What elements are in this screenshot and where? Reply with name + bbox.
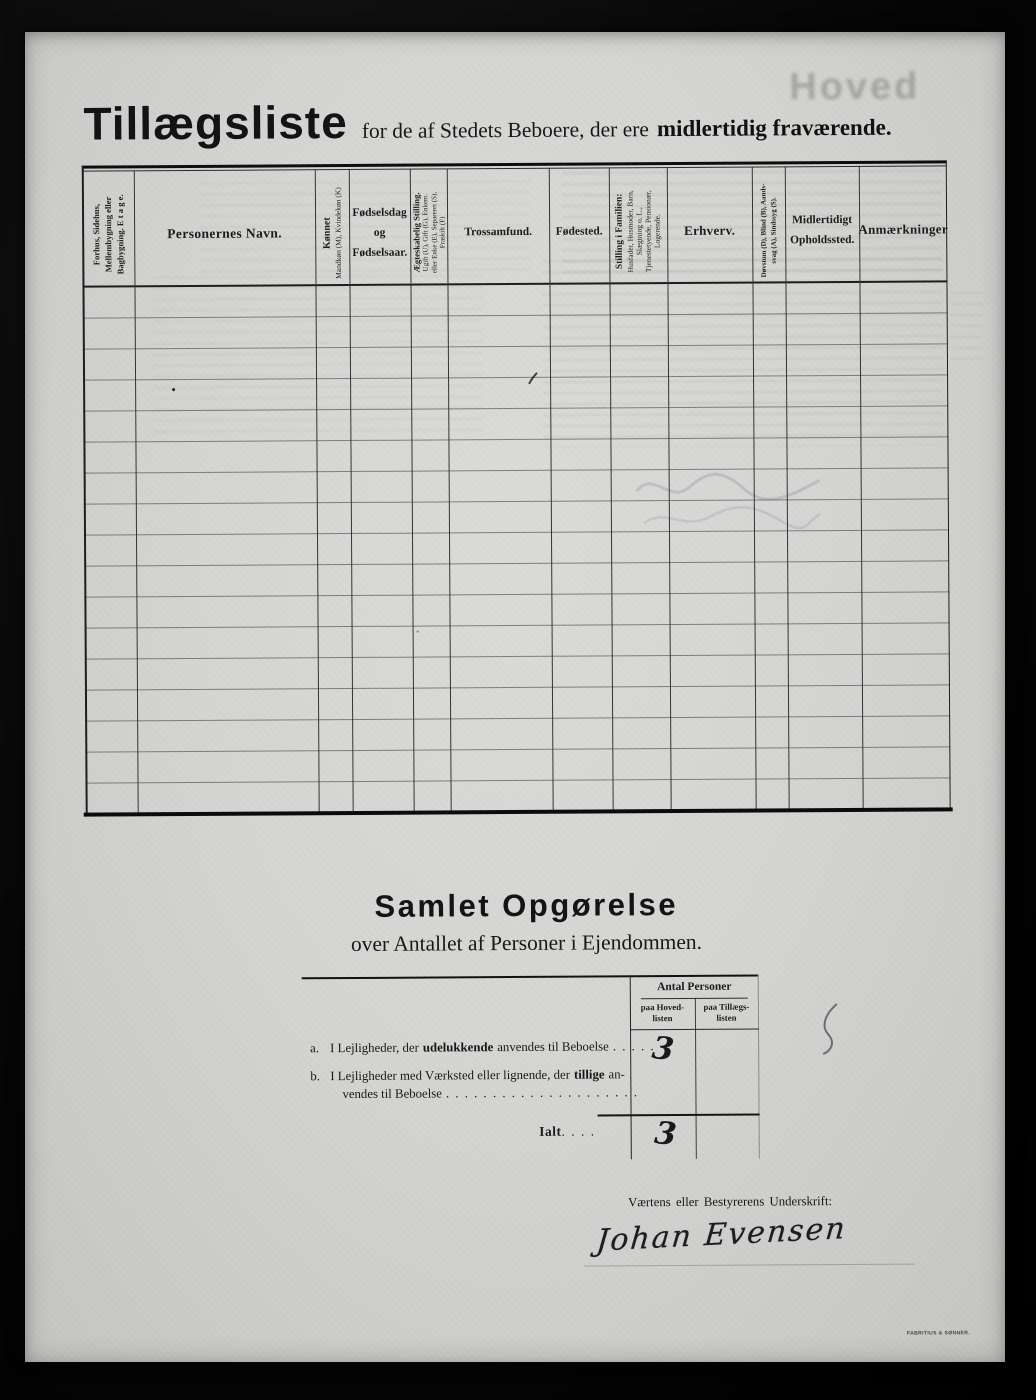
- row-b-bold: tillige: [574, 1067, 605, 1081]
- column-header-family-position: Stilling i Familien: Husfader, Husmoder,…: [609, 174, 668, 288]
- scan-background: { "title": { "main": "Tillægsliste", "mi…: [0, 0, 1036, 1400]
- ink-speck: [417, 631, 419, 633]
- row-b-index: b.: [310, 1069, 330, 1084]
- handwritten-total-hovedlisten: 3: [653, 1115, 679, 1153]
- scanned-form: Hoved Tillægsliste for de af Stedets Beb…: [21, 29, 1009, 1365]
- signature-label: Værtens eller Bestyrerens Underskrift:: [628, 1194, 832, 1210]
- bleed-through-text-block: [951, 291, 983, 361]
- census-table: Forhus, Sidehus, Mellembygning eller Bag…: [82, 160, 951, 815]
- column-header-faith: Trossamfund.: [447, 175, 550, 290]
- signature-rule: [584, 1264, 914, 1267]
- paper: Hoved Tillægsliste for de af Stedets Beb…: [25, 32, 1005, 1362]
- summary-row-b: b.I Lejligheder med Værksted eller ligne…: [310, 1067, 640, 1084]
- summary-col-tillaegslisten: paa Tillægs- listen: [695, 1002, 758, 1023]
- summary-top-rule: [302, 975, 759, 980]
- summary-row-b-line2: vendes til Beboelse. . . . . . . . . . .…: [342, 1085, 642, 1102]
- summary-subtitle: over Antallet af Personer i Ejendommen.: [186, 929, 866, 958]
- form-title: Tillægsliste for de af Stedets Beboere, …: [83, 91, 963, 150]
- ink-speck: [172, 388, 175, 391]
- form-title-emphasis: midlertidig fraværende.: [657, 115, 892, 142]
- pen-stroke: [817, 1002, 843, 1061]
- column-header-sex: Kønnet Mandkøn (M), Kvindekøn (K): [315, 176, 350, 290]
- handwritten-count-hovedlisten: 3: [650, 1030, 676, 1068]
- column-header-name: Personernes Navn.: [134, 176, 316, 291]
- column-header-temporary-residence: Midlertidigt Opholdssted.: [785, 173, 860, 287]
- summary-total-rule: [598, 1114, 760, 1117]
- summary-table: Antal Personer paa Hoved- listen paa Til…: [302, 975, 760, 1162]
- summary-row-a: a.I Lejligheder, derudelukkendeanvendes …: [310, 1039, 630, 1056]
- summary-title: Samlet Opgørelse: [186, 886, 866, 926]
- table-body: [82, 282, 950, 814]
- form-title-main: Tillægsliste: [83, 95, 348, 151]
- dotted-leader: . . . .: [561, 1124, 595, 1139]
- column-header-remarks: Anmærkninger: [859, 172, 948, 287]
- printer-mark: FABRITIUS & SØNNER.: [907, 1330, 970, 1336]
- column-header-disability: Døvstum (D), Blind (B), Aands- svag (A),…: [752, 173, 786, 287]
- column-header-marital-status: Ægteskabelig Stilling. Ugift (U), Gift (…: [410, 175, 448, 289]
- column-header-building: Forhus, Sidehus, Mellembygning eller Bag…: [82, 177, 135, 291]
- column-header-birthdate: Fødselsdag og Fødselsaar.: [349, 176, 411, 290]
- handwritten-signature: Johan Evensen: [595, 1210, 878, 1259]
- row-a-bold: udelukkende: [423, 1040, 494, 1054]
- dotted-leader: . . . . . . . . . . . . . . . . . . . . …: [446, 1085, 639, 1100]
- column-header-occupation: Erhverv.: [667, 174, 753, 289]
- summary-total-label: Ialt. . . .: [478, 1124, 596, 1141]
- summary-group-header: Antal Personer: [630, 981, 759, 994]
- summary-col-hovedlisten: paa Hoved- listen: [630, 1002, 695, 1023]
- dotted-leader: . . . . .: [613, 1039, 655, 1053]
- table-header-row: Forhus, Sidehus, Mellembygning eller Bag…: [82, 166, 948, 287]
- form-title-mid: for de af Stedets Beboere, der ere: [362, 117, 649, 144]
- column-header-birthplace: Fødested.: [549, 174, 610, 288]
- row-a-index: a.: [310, 1041, 330, 1056]
